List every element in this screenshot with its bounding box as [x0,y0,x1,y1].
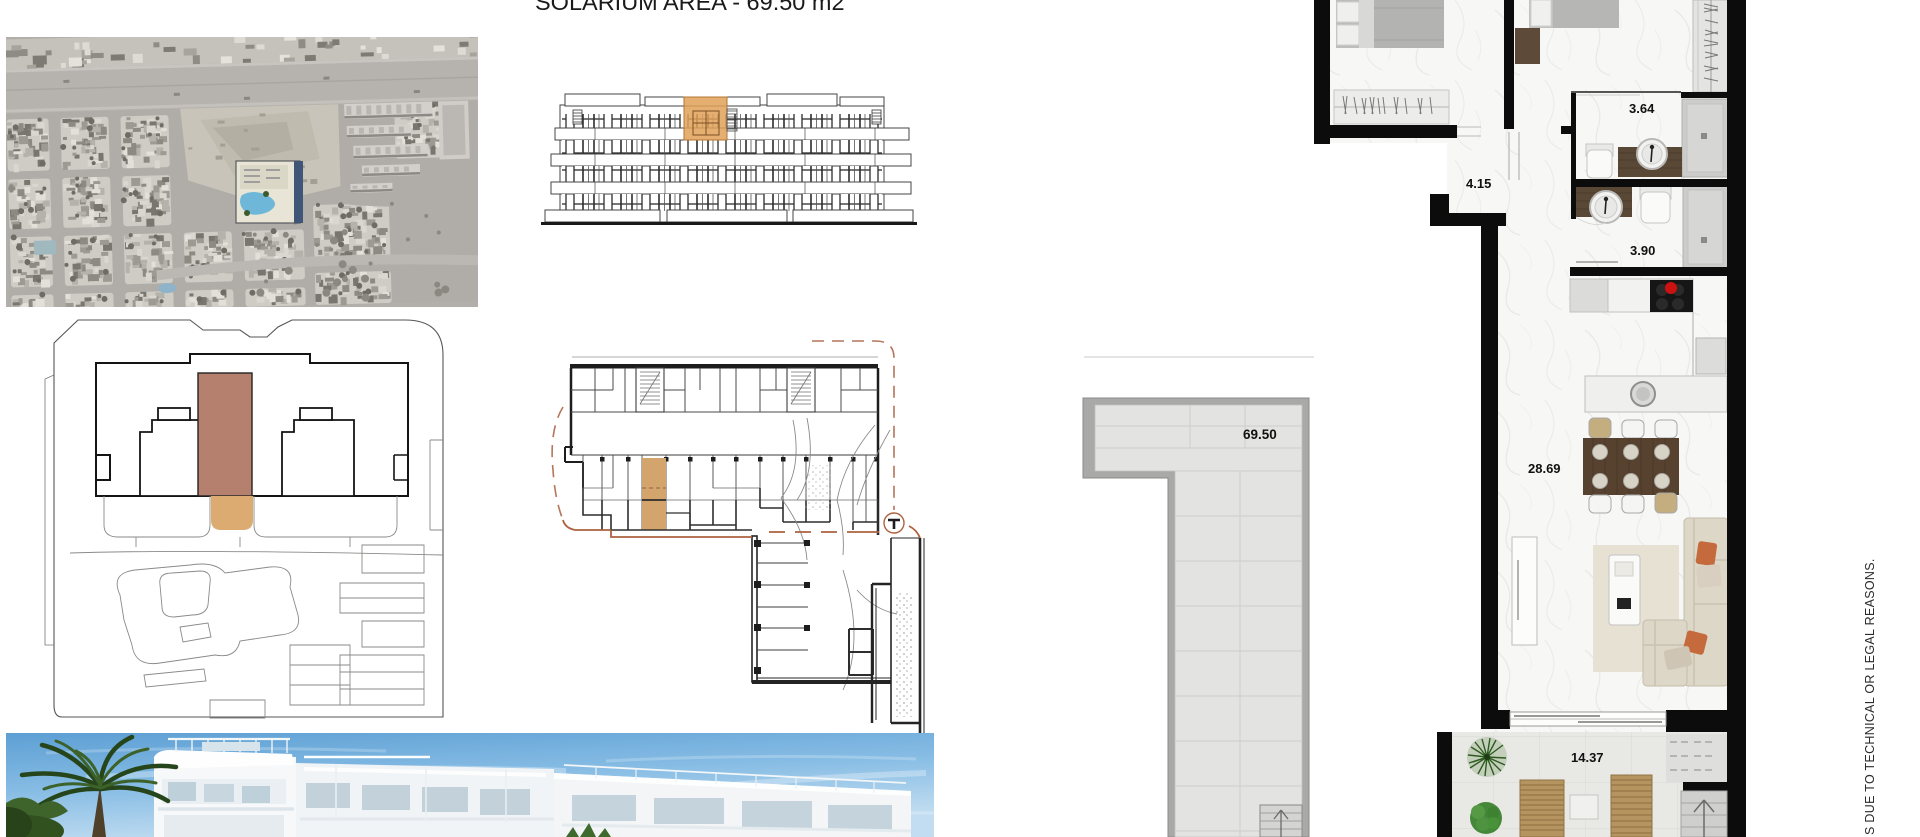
svg-text:4.15: 4.15 [1466,176,1491,191]
svg-text:3.64: 3.64 [1629,101,1655,116]
svg-text:69.50: 69.50 [1243,427,1277,442]
svg-text:3.90: 3.90 [1630,243,1655,258]
svg-text:14.37: 14.37 [1571,750,1604,765]
svg-text:28.69: 28.69 [1528,461,1561,476]
svg-text:S DUE TO TECHNICAL OR LEGAL RE: S DUE TO TECHNICAL OR LEGAL REASONS. [1863,558,1877,835]
